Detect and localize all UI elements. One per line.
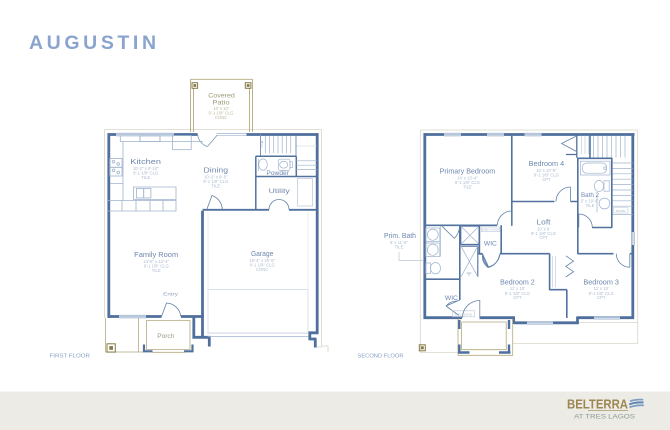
- svg-text:TILE: TILE: [463, 184, 472, 189]
- svg-text:WIC: WIC: [484, 240, 497, 247]
- svg-text:Entry: Entry: [163, 291, 179, 297]
- svg-text:CPT: CPT: [513, 295, 522, 300]
- svg-text:CONC: CONC: [256, 267, 268, 272]
- svg-text:TILE: TILE: [395, 245, 404, 250]
- svg-text:Powder: Powder: [266, 171, 289, 177]
- svg-text:AT TRES LAGOS: AT TRES LAGOS: [574, 414, 635, 420]
- svg-text:TILE: TILE: [152, 268, 161, 273]
- svg-text:CPT: CPT: [597, 295, 606, 300]
- svg-text:TILE: TILE: [586, 203, 595, 208]
- svg-text:Utility: Utility: [269, 188, 291, 195]
- svg-text:WIC: WIC: [445, 295, 458, 302]
- svg-text:Covered: Covered: [208, 92, 235, 99]
- svg-text:SHELF & ROD: SHELF & ROD: [482, 228, 499, 232]
- svg-text:SECOND FLOOR: SECOND FLOOR: [358, 353, 404, 359]
- svg-text:DOWN: DOWN: [616, 209, 626, 213]
- svg-text:CPT: CPT: [542, 177, 551, 182]
- svg-text:AUGUSTIN: AUGUSTIN: [29, 32, 160, 54]
- svg-text:FIRST FLOOR: FIRST FLOOR: [50, 353, 91, 359]
- svg-text:TILE: TILE: [211, 183, 220, 188]
- svg-text:CONC: CONC: [215, 115, 227, 120]
- svg-text:Porch: Porch: [157, 333, 174, 340]
- svg-text:BELTERRA: BELTERRA: [567, 397, 629, 412]
- svg-text:TILE: TILE: [141, 175, 150, 180]
- svg-text:CPT: CPT: [539, 235, 548, 240]
